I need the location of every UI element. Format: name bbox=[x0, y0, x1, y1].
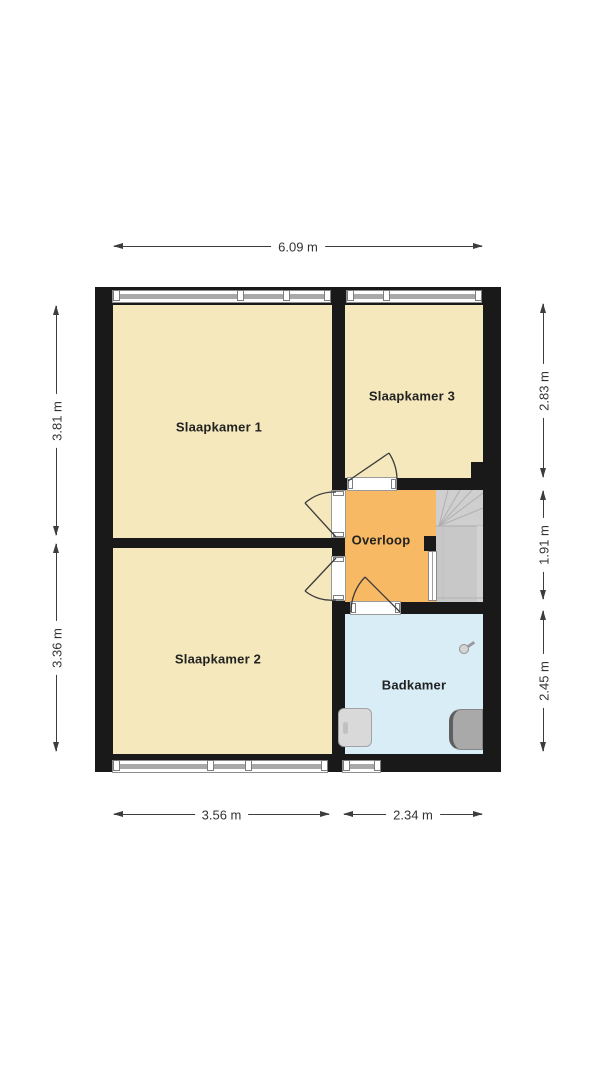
dimension-top-width: 6.09 m bbox=[113, 240, 483, 253]
dim-label: 2.83 m bbox=[536, 364, 551, 418]
room-label-slaapkamer2: Slaapkamer 2 bbox=[175, 652, 261, 667]
dim-arrow-down bbox=[540, 468, 546, 478]
dimension-right-upper: 2.83 m bbox=[537, 303, 550, 478]
dim-arrow-down bbox=[53, 526, 59, 536]
dim-arrow-left bbox=[113, 243, 123, 249]
door-swing-slaapkamer3 bbox=[348, 453, 397, 481]
dim-arrow-right bbox=[473, 811, 483, 817]
room-label-badkamer: Badkamer bbox=[382, 678, 446, 693]
room-label-slaapkamer1: Slaapkamer 1 bbox=[176, 420, 262, 435]
dim-arrow-right bbox=[320, 811, 330, 817]
dim-arrow-up bbox=[53, 543, 59, 553]
dim-label: 6.09 m bbox=[271, 239, 325, 254]
dim-label: 2.45 m bbox=[536, 654, 551, 708]
dimension-left-lower: 3.36 m bbox=[50, 543, 63, 752]
dimension-right-middle: 1.91 m bbox=[537, 490, 550, 600]
fixture-drain-mark bbox=[343, 722, 348, 734]
dim-label: 3.56 m bbox=[195, 807, 249, 822]
dim-arrow-left bbox=[113, 811, 123, 817]
dim-arrow-up bbox=[540, 303, 546, 313]
dim-label: 3.81 m bbox=[49, 394, 64, 448]
door-swing-badkamer bbox=[351, 577, 400, 612]
room-label-slaapkamer3: Slaapkamer 3 bbox=[369, 389, 455, 404]
dimension-bottom-right: 2.34 m bbox=[343, 808, 483, 821]
dimension-bottom-left: 3.56 m bbox=[113, 808, 330, 821]
bathroom-fixture-right bbox=[449, 709, 483, 750]
dim-arrow-down bbox=[53, 742, 59, 752]
dimension-left-upper: 3.81 m bbox=[50, 305, 63, 536]
floor-plan-canvas: Slaapkamer 1 Slaapkamer 3 Slaapkamer 2 O… bbox=[0, 0, 600, 1066]
door-swing-slaapkamer1 bbox=[305, 492, 336, 537]
dim-arrow-up bbox=[53, 305, 59, 315]
dim-arrow-down bbox=[540, 590, 546, 600]
door-swings bbox=[0, 0, 600, 1066]
dim-label: 1.91 m bbox=[536, 518, 551, 572]
dim-arrow-up bbox=[540, 610, 546, 620]
bathroom-fixture-left bbox=[338, 708, 372, 747]
dim-arrow-up bbox=[540, 490, 546, 500]
door-swing-slaapkamer2 bbox=[305, 558, 336, 600]
dim-arrow-left bbox=[343, 811, 353, 817]
dimension-right-lower: 2.45 m bbox=[537, 610, 550, 752]
dim-arrow-right bbox=[473, 243, 483, 249]
dim-arrow-down bbox=[540, 742, 546, 752]
faucet-icon bbox=[459, 644, 469, 654]
dim-label: 2.34 m bbox=[386, 807, 440, 822]
room-label-overloop: Overloop bbox=[352, 533, 411, 548]
dim-label: 3.36 m bbox=[49, 621, 64, 675]
